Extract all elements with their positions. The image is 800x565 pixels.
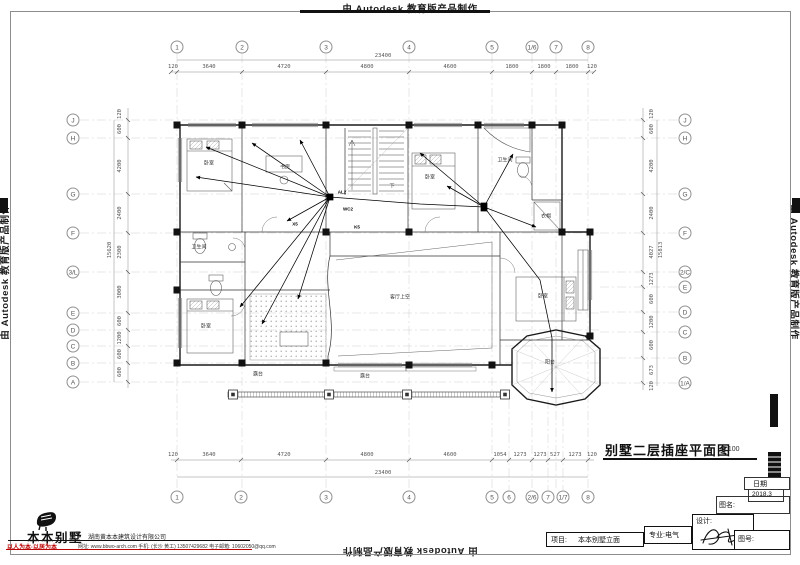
overall-dim-top: 23400 [375,53,392,59]
project-label: 项目: [551,535,567,545]
red-rule [6,549,252,550]
top-edge-mark [300,10,490,13]
drawing-number-label: 图号: [738,534,754,544]
title-underline [603,458,757,460]
project-value: 本本别墅立面 [578,535,620,545]
major-label: 专业:电气 [649,530,679,540]
drawing-name-label: 图名: [719,500,735,510]
right-fold-mark [770,394,778,427]
cad-sheet: { "watermark": {"text": "由 Autodesk 教育版产… [0,0,800,565]
date-label: 日期 [753,479,767,489]
left-edge-mark [0,198,8,213]
overall-dim-bottom: 23400 [375,470,392,476]
revision-strip [768,452,781,477]
drawing-title: 别墅二层插座平面图 [605,440,731,459]
overall-dim-left: 15620 [107,242,113,259]
sheet-border [10,11,791,555]
drawing-scale: 1:100 [722,446,740,453]
overall-dim-right: 15813 [658,242,664,259]
right-edge-mark [792,198,800,213]
